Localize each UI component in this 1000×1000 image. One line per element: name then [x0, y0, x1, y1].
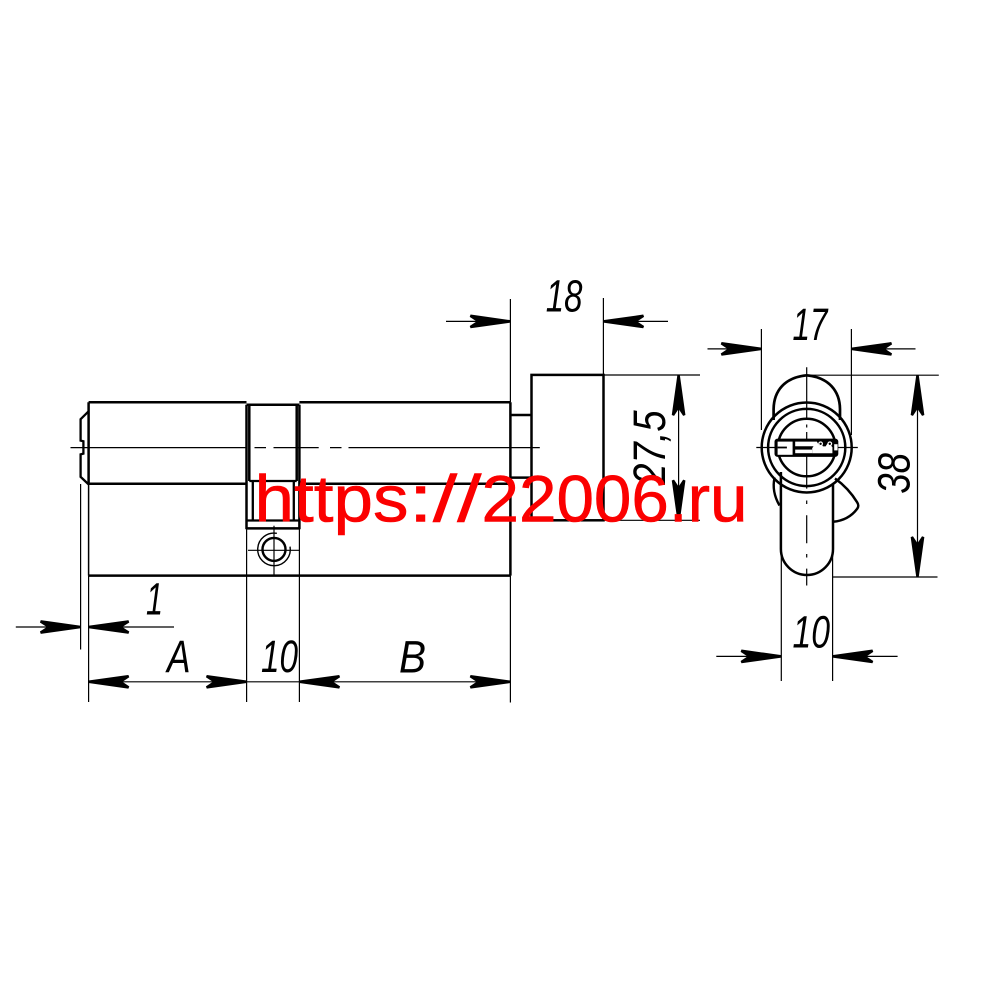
svg-text:10: 10 — [792, 607, 830, 658]
svg-text:10: 10 — [261, 631, 298, 682]
svg-text:17: 17 — [793, 299, 829, 350]
svg-text:B: B — [399, 632, 426, 683]
svg-text:38: 38 — [868, 453, 919, 494]
svg-text:1: 1 — [146, 574, 163, 625]
svg-text:18: 18 — [546, 270, 583, 321]
svg-text:A: A — [165, 631, 191, 682]
svg-text:https://22006.ru: https://22006.ru — [255, 461, 748, 535]
